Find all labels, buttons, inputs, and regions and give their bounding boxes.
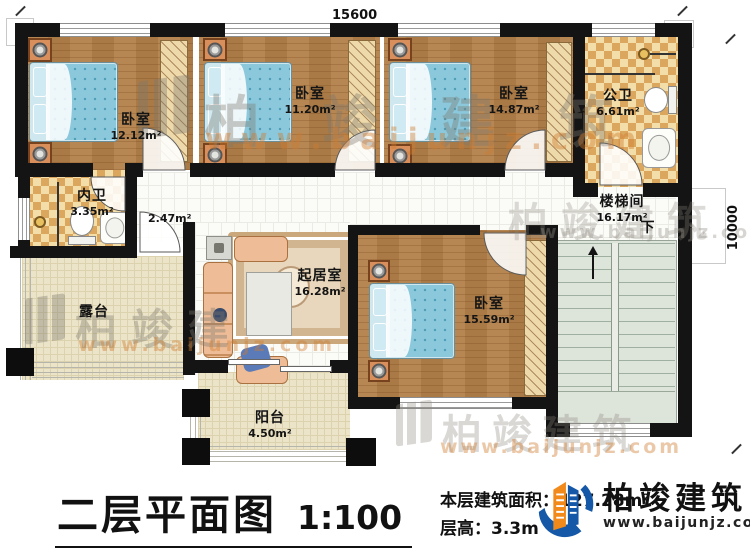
door-bedroom3 <box>505 130 545 170</box>
brand-logo-icon <box>533 475 595 539</box>
floor-plan-canvas: 15600 10000 <box>0 0 750 548</box>
room-label-bedroom4: 卧室 15.59m² <box>450 296 528 326</box>
room-label-bedroom3: 卧室 14.87m² <box>476 86 552 116</box>
floor-height-label: 层高： <box>440 519 491 539</box>
brand-text: 柏竣建筑 www.baijunjz.com <box>603 483 750 532</box>
floor-height-value: 3.3m <box>491 519 539 539</box>
dimension-top: 15600 <box>332 8 377 23</box>
room-label-bedroom2: 卧室 11.20m² <box>272 86 348 116</box>
door-arcs-layer <box>0 0 750 548</box>
floor-height-line: 层高：3.3m <box>440 514 539 539</box>
room-label-bedroom1: 卧室 12.12m² <box>100 112 172 142</box>
stairs-down-label: 下 <box>636 220 660 237</box>
dimension-right: 10000 <box>726 205 741 250</box>
drawing-scale: 1:100 <box>297 498 402 537</box>
door-bedroom2 <box>335 130 375 170</box>
room-label-terrace: 露台 <box>68 304 120 321</box>
corridor-area-label: 2.47m² <box>148 212 191 225</box>
brand-name: 柏竣建筑 <box>603 483 750 516</box>
room-label-inner-bath: 内卫 3.35m² <box>58 188 126 218</box>
room-label-balcony: 阳台 4.50m² <box>238 410 302 440</box>
room-label-living: 起居室 16.28m² <box>278 268 362 298</box>
drawing-title-block: 二层平面图 1:100 <box>55 481 412 548</box>
brand-website: www.baijunjz.com <box>603 515 750 531</box>
door-bedroom4 <box>484 233 526 275</box>
drawing-title: 二层平面图 <box>57 481 277 541</box>
room-label-public-bath: 公卫 6.61m² <box>582 88 654 118</box>
door-public-bath <box>600 143 642 185</box>
brand-block: 柏竣建筑 www.baijunjz.com <box>533 475 750 539</box>
